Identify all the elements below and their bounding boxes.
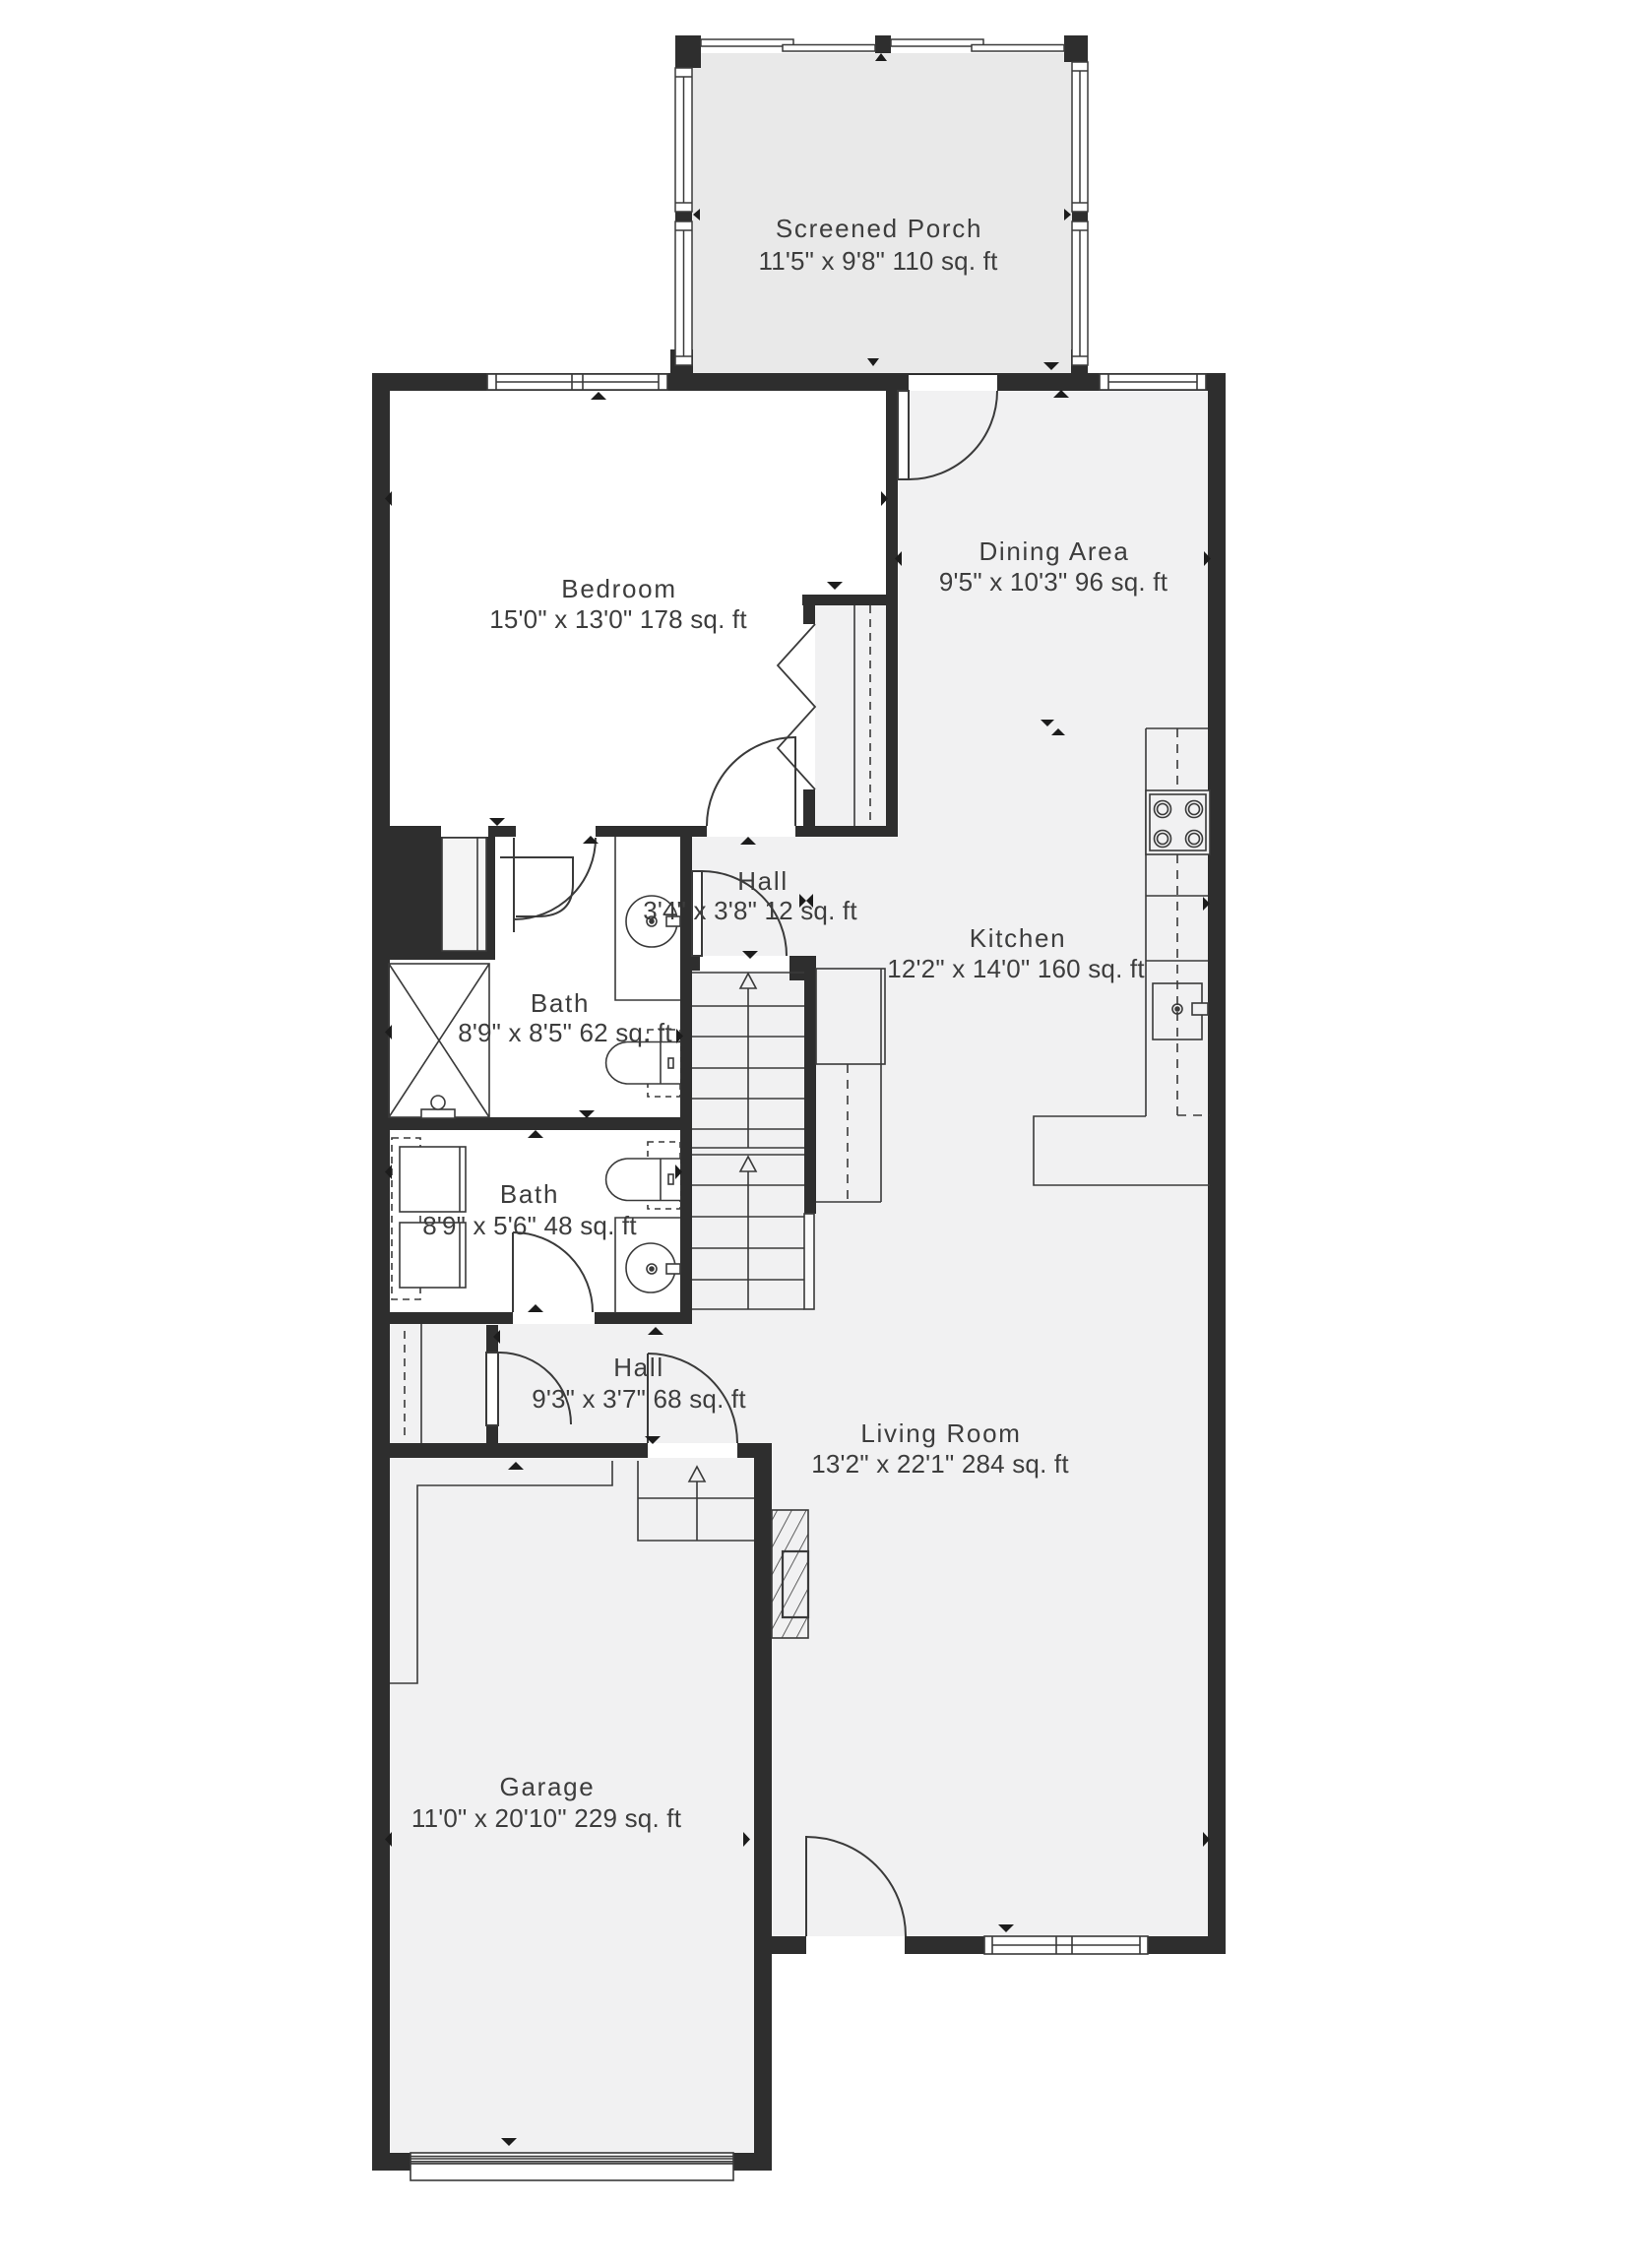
svg-text:Living Room: Living Room bbox=[860, 1418, 1021, 1448]
svg-text:11'5" x 9'8" 110 sq. ft: 11'5" x 9'8" 110 sq. ft bbox=[758, 246, 998, 276]
svg-text:12'2" x 14'0" 160 sq. ft: 12'2" x 14'0" 160 sq. ft bbox=[887, 954, 1145, 983]
svg-text:Kitchen: Kitchen bbox=[970, 923, 1067, 953]
svg-text:11'0" x 20'10" 229 sq. ft: 11'0" x 20'10" 229 sq. ft bbox=[411, 1803, 682, 1833]
svg-text:9'5" x 10'3" 96 sq. ft: 9'5" x 10'3" 96 sq. ft bbox=[939, 567, 1168, 597]
svg-text:Garage: Garage bbox=[500, 1772, 596, 1801]
svg-text:Dining Area: Dining Area bbox=[978, 536, 1129, 566]
svg-text:8'9" x 8'5" 62 sq. ft: 8'9" x 8'5" 62 sq. ft bbox=[458, 1018, 672, 1047]
svg-text:15'0" x 13'0" 178 sq. ft: 15'0" x 13'0" 178 sq. ft bbox=[489, 604, 747, 634]
svg-text:Bath: Bath bbox=[531, 988, 590, 1018]
svg-text:8'9" x 5'6" 48 sq. ft: 8'9" x 5'6" 48 sq. ft bbox=[422, 1211, 637, 1240]
svg-text:Bath: Bath bbox=[500, 1179, 559, 1209]
svg-text:Hall: Hall bbox=[737, 866, 789, 896]
svg-text:Bedroom: Bedroom bbox=[561, 574, 676, 603]
svg-text:Screened Porch: Screened Porch bbox=[776, 214, 982, 243]
svg-text:Hall: Hall bbox=[613, 1353, 664, 1382]
svg-text:13'2" x 22'1" 284 sq. ft: 13'2" x 22'1" 284 sq. ft bbox=[811, 1449, 1069, 1479]
svg-text:3'4" x 3'8" 12 sq. ft: 3'4" x 3'8" 12 sq. ft bbox=[643, 896, 857, 925]
svg-text:9'3" x 3'7" 68 sq. ft: 9'3" x 3'7" 68 sq. ft bbox=[532, 1384, 746, 1414]
